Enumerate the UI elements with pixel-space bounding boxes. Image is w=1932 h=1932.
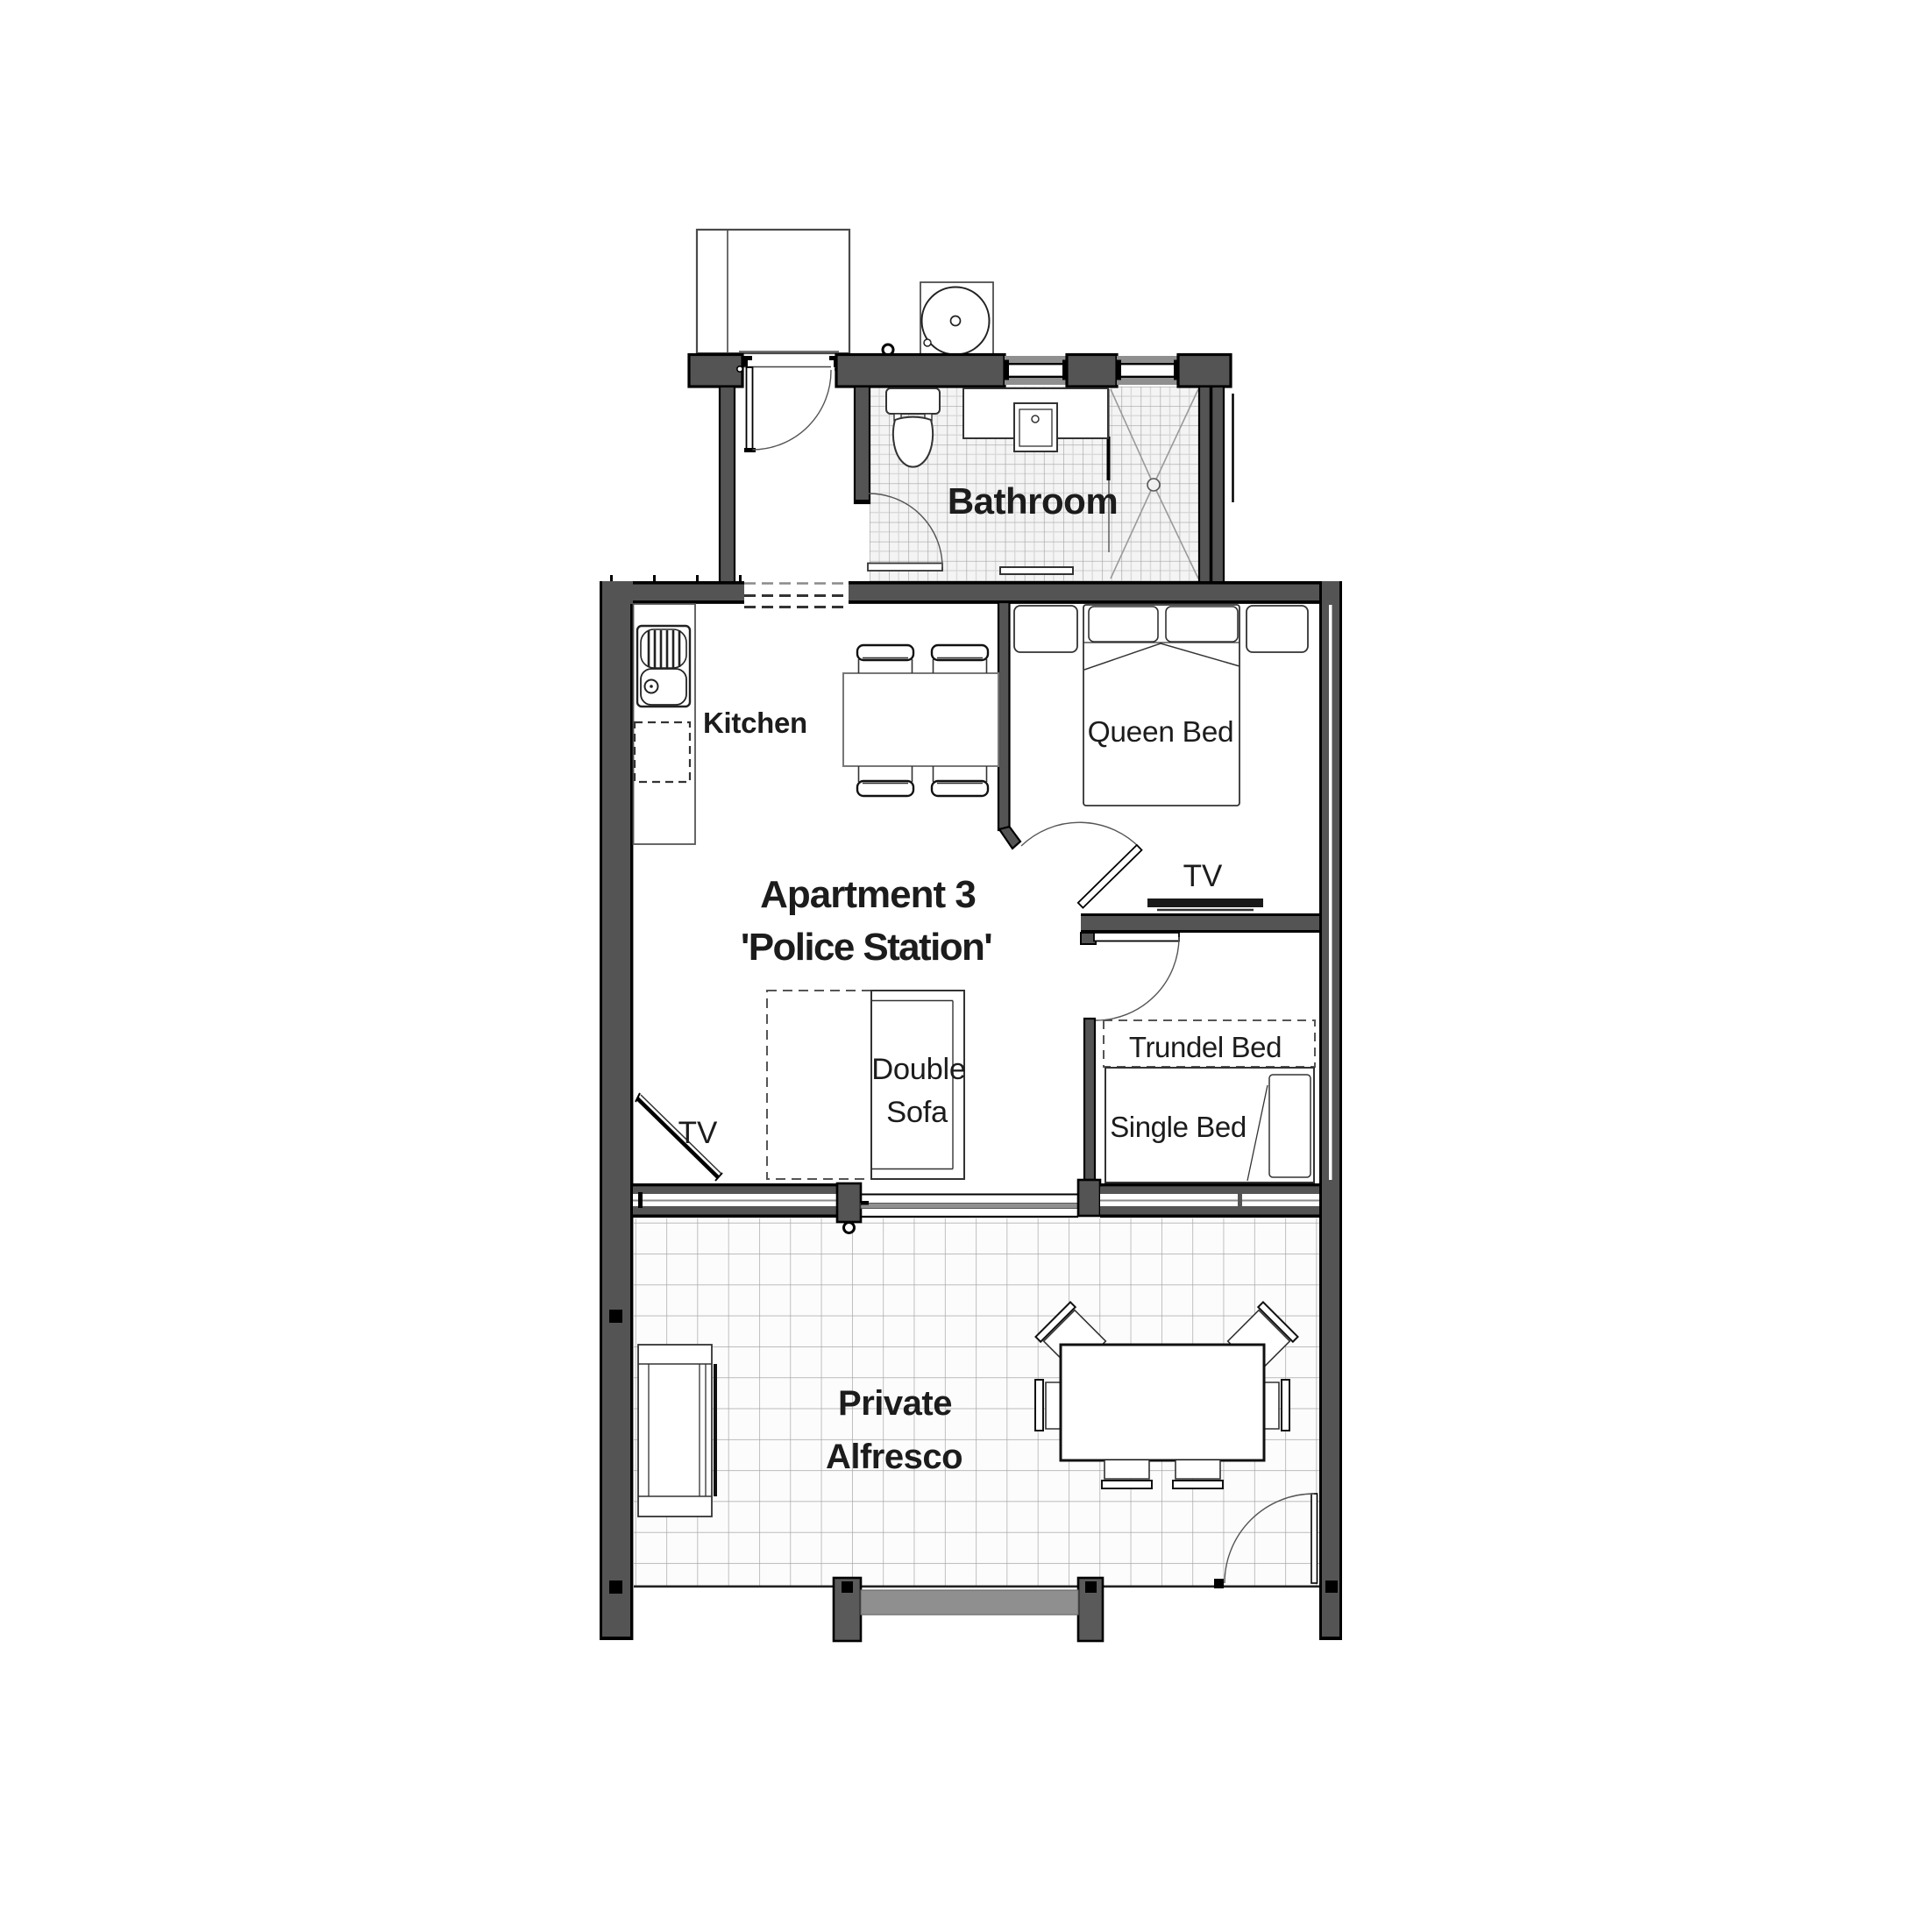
svg-text:Double: Double [871,1053,966,1086]
svg-text:TV: TV [678,1116,718,1150]
svg-text:Alfresco: Alfresco [826,1438,962,1476]
svg-text:Kitchen: Kitchen [703,707,807,739]
svg-text:Sofa: Sofa [886,1096,948,1129]
svg-text:Trundel Bed: Trundel Bed [1129,1031,1282,1063]
svg-text:Single Bed: Single Bed [1110,1111,1247,1143]
svg-text:TV: TV [1183,859,1223,893]
svg-text:'Police Station': 'Police Station' [741,926,991,969]
svg-text:Apartment 3: Apartment 3 [760,873,976,916]
svg-text:Bathroom: Bathroom [948,480,1118,522]
svg-text:Queen Bed: Queen Bed [1088,716,1234,749]
svg-text:Private: Private [838,1384,952,1423]
